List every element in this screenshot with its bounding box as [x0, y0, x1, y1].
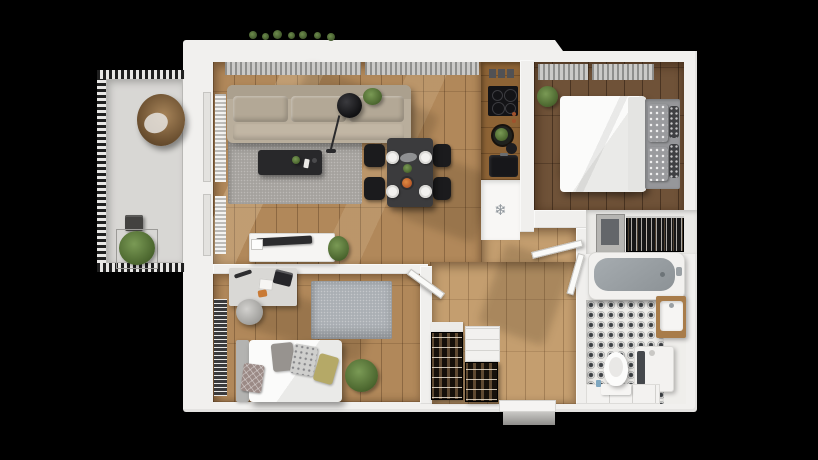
- window-frame-left-upper: [203, 92, 211, 182]
- tiny-plant-icon: [299, 31, 307, 39]
- hanging-egg-chair: [137, 94, 185, 146]
- tiny-plant-icon: [273, 30, 282, 39]
- wall-hall-bathroom: [576, 228, 586, 404]
- balcony-railing-bottom: [97, 263, 185, 272]
- balcony-railing-top: [97, 70, 185, 79]
- balcony-railing-left: [97, 70, 106, 272]
- wall-kitchen-bedroom: [520, 60, 534, 232]
- egg-chair-cushion: [141, 110, 170, 136]
- wall-bedroom-hall: [534, 210, 588, 228]
- balcony-floor: [106, 79, 183, 263]
- tiny-plant-icon: [327, 33, 335, 41]
- tiny-plant-icon: [314, 32, 321, 39]
- floorplan-stage: ❄: [0, 0, 818, 460]
- tiny-plant-icon: [288, 32, 295, 39]
- balcony-storage-box: [125, 215, 143, 231]
- wall-living-office: [213, 264, 428, 274]
- entrance-step: [503, 412, 555, 425]
- tiny-plant-icon: [262, 33, 269, 40]
- window-frame-left-lower: [203, 194, 211, 256]
- tiny-plant-icon: [249, 31, 257, 39]
- wall-office-hall: [420, 266, 432, 404]
- planter-frame: [116, 229, 158, 269]
- balcony-shrub: [119, 231, 155, 265]
